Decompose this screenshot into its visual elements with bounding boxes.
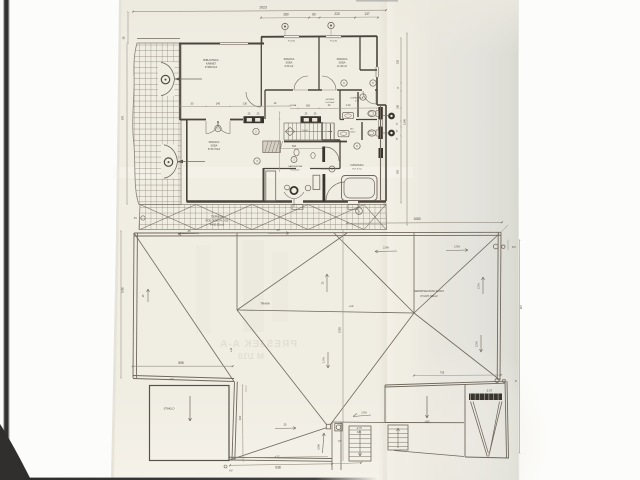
svg-text:P=237.90m2: P=237.90m2 (420, 294, 437, 298)
svg-text:927: 927 (519, 304, 523, 309)
svg-text:16x18: 16x18 (302, 130, 308, 132)
svg-text:735: 735 (440, 370, 445, 374)
svg-text:KUPAONICA: KUPAONICA (350, 164, 364, 167)
svg-text:130: 130 (243, 103, 248, 106)
svg-text:325: 325 (357, 431, 362, 434)
svg-text:KV: KV (383, 205, 387, 207)
svg-text:200: 200 (397, 59, 400, 64)
svg-text:1.72m2: 1.72m2 (349, 132, 357, 134)
svg-text:190: 190 (306, 104, 311, 107)
svg-text:1.10: 1.10 (346, 104, 351, 107)
svg-text:1.5%: 1.5% (323, 356, 326, 362)
svg-text:KV: KV (512, 245, 516, 249)
svg-text:WC: WC (350, 129, 354, 131)
svg-text:HODNIK: HODNIK (326, 99, 335, 101)
svg-text:P=1.60: P=1.60 (330, 41, 338, 43)
svg-text:KV: KV (134, 217, 138, 220)
svg-text:TERASA: TERASA (211, 215, 223, 219)
svg-text:2.5%: 2.5% (361, 411, 367, 414)
svg-text:+12: +12 (349, 304, 354, 308)
svg-text:25: 25 (187, 229, 191, 233)
svg-text:KV: KV (338, 440, 342, 443)
svg-text:137: 137 (364, 12, 370, 16)
svg-text:POD: KER. PLOCE: POD: KER. PLOCE (206, 219, 229, 223)
svg-text:2.5%: 2.5% (476, 340, 479, 346)
svg-text:P=20.05 m2: P=20.05 m2 (210, 223, 225, 227)
svg-text:1080: 1080 (413, 217, 421, 221)
svg-text:STAKLO: STAKLO (164, 407, 176, 411)
svg-text:P=1.60: P=1.60 (288, 41, 296, 43)
svg-text:345: 345 (397, 169, 400, 174)
svg-text:2.5%: 2.5% (478, 282, 481, 288)
svg-text:188: 188 (397, 104, 400, 109)
svg-text:-005: -005 (424, 421, 430, 424)
svg-text:240: 240 (216, 103, 221, 106)
svg-text:-2.75: -2.75 (356, 427, 362, 430)
svg-text:+12: +12 (275, 455, 280, 459)
svg-text:60: 60 (312, 12, 316, 16)
svg-text:M 1/10: M 1/10 (238, 351, 264, 361)
svg-text:5.5%: 5.5% (318, 443, 321, 449)
svg-text:1563: 1563 (338, 327, 342, 333)
svg-text:280: 280 (283, 13, 289, 17)
svg-text:363: 363 (292, 145, 297, 148)
svg-text:970: 970 (122, 115, 125, 120)
svg-text:11.36 m2: 11.36 m2 (337, 65, 347, 68)
svg-text:KV: KV (229, 470, 233, 473)
svg-text:220: 220 (334, 12, 340, 16)
svg-text:GARDEROBA: GARDEROBA (288, 165, 303, 168)
svg-text:2.5%: 2.5% (454, 246, 460, 249)
svg-text:25: 25 (276, 228, 280, 232)
svg-text:1085: 1085 (121, 287, 125, 293)
svg-text:1249: 1249 (403, 119, 407, 125)
svg-text:638: 638 (275, 466, 281, 470)
svg-text:1023: 1023 (259, 6, 267, 10)
svg-text:+12: +12 (169, 377, 174, 381)
svg-text:2.5%: 2.5% (383, 246, 389, 249)
svg-text:595: 595 (178, 361, 184, 365)
svg-text:-2.75: -2.75 (486, 389, 492, 393)
svg-text:SOBA: SOBA (290, 104, 297, 107)
svg-text:8.36 m2: 8.36 m2 (285, 65, 294, 68)
svg-text:P=3.5m2: P=3.5m2 (291, 170, 301, 172)
svg-text:PRESJEK A-A: PRESJEK A-A (219, 339, 297, 350)
svg-text:P=15.76m2: P=15.76m2 (208, 148, 221, 151)
svg-text:NEPRISHODNI KROV: NEPRISHODNI KROV (414, 289, 444, 293)
svg-text:430: 430 (238, 415, 242, 420)
svg-text:P=08/15m2: P=08/15m2 (205, 66, 218, 69)
svg-text:K: K (515, 379, 517, 383)
svg-text:BIBLIOTEKA: BIBLIOTEKA (203, 58, 218, 62)
svg-text:P=7.5 m2: P=7.5 m2 (352, 169, 362, 171)
